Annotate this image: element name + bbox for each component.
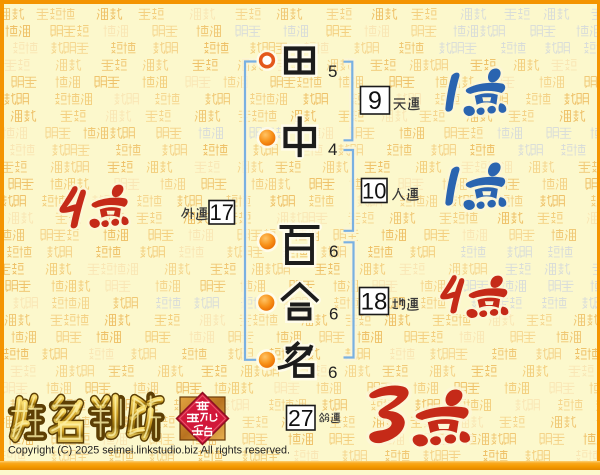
svg-text:27: 27	[288, 405, 314, 431]
svg-text:Copyright (C) 2025 seimei.link: Copyright (C) 2025 seimei.linkstudio.biz…	[8, 445, 290, 457]
svg-text:18: 18	[361, 289, 388, 316]
svg-text:6: 6	[329, 242, 338, 261]
svg-text:6: 6	[329, 305, 338, 324]
svg-text:4: 4	[328, 140, 337, 159]
svg-text:6: 6	[328, 363, 337, 382]
svg-text:9: 9	[368, 87, 382, 115]
svg-text:5: 5	[328, 62, 337, 81]
svg-text:10: 10	[362, 178, 386, 203]
svg-text:17: 17	[210, 200, 234, 225]
